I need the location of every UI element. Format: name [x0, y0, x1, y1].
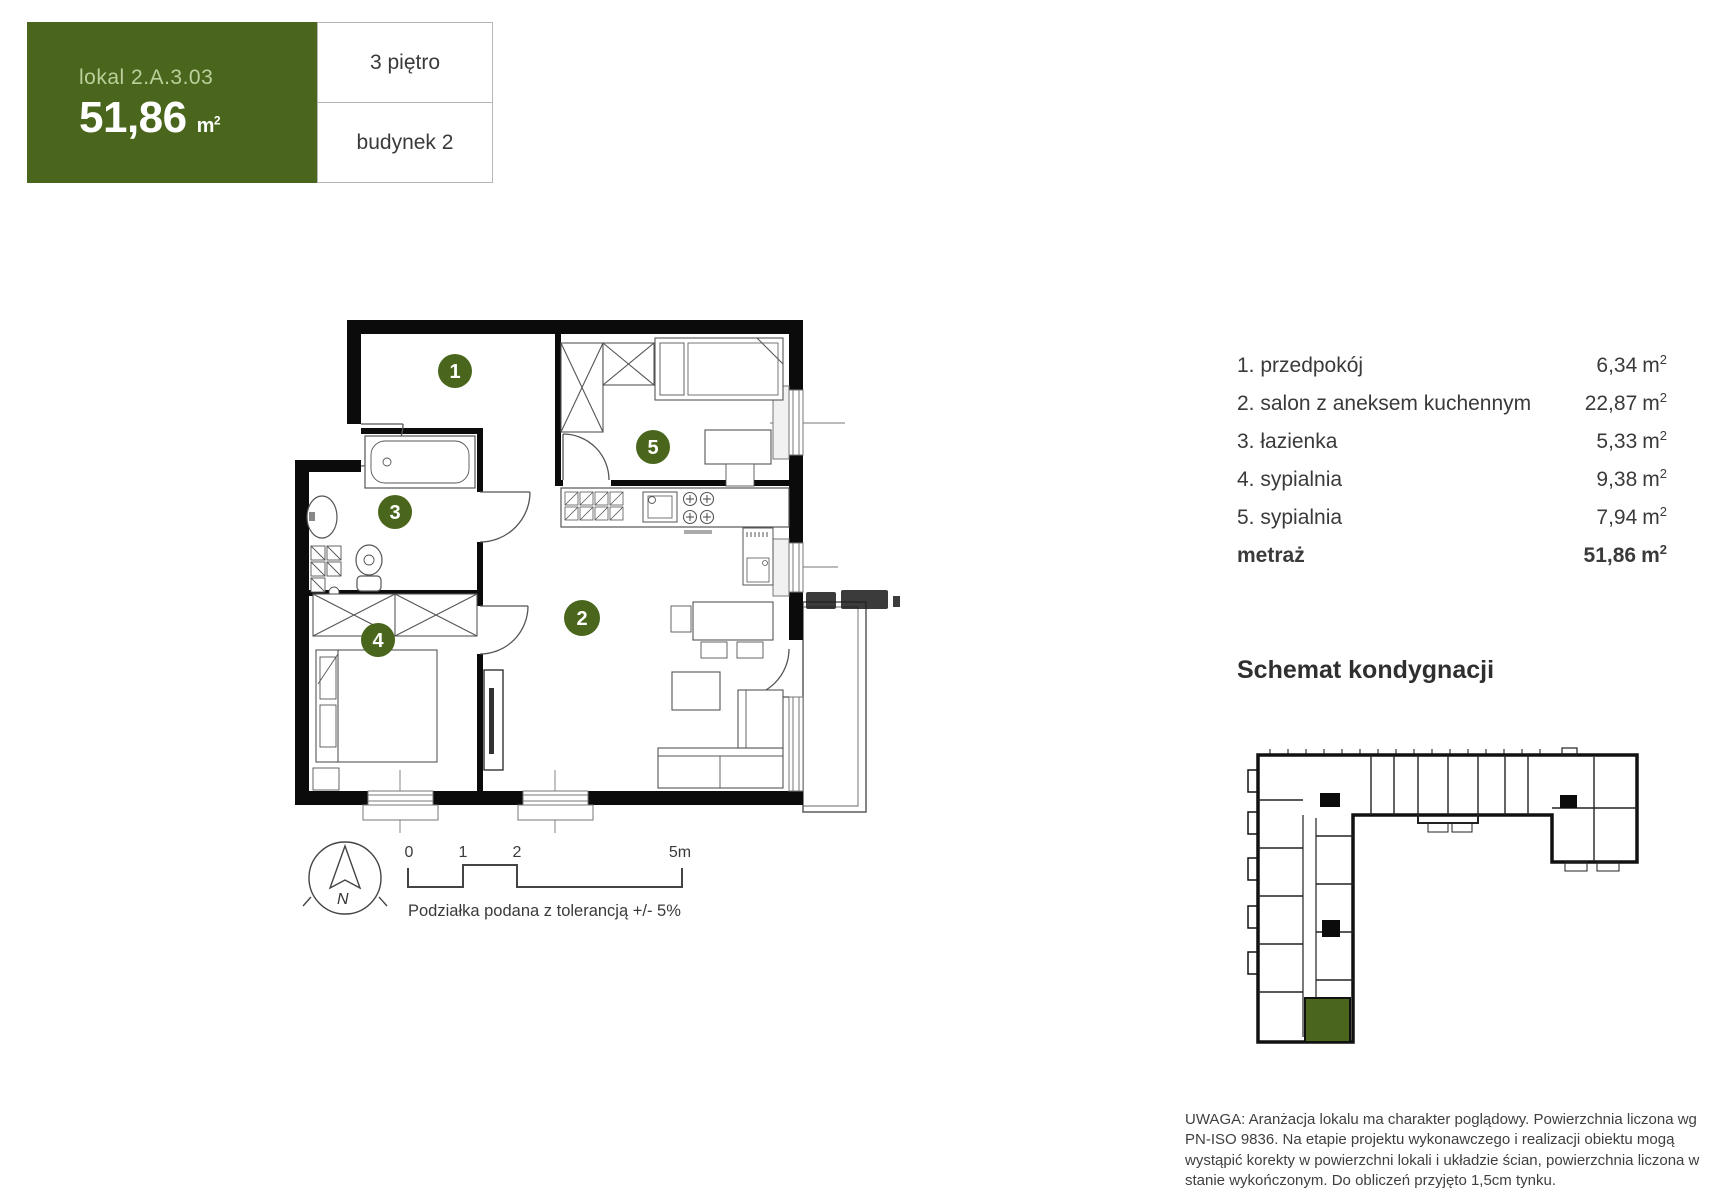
bedroom5-furniture: [561, 338, 783, 486]
fridge: [743, 528, 773, 585]
badge-4: 4: [372, 630, 384, 652]
wardrobe-room4: [313, 594, 477, 636]
unit-meta-table: 3 piętro budynek 2: [317, 22, 493, 183]
floor-cell: 3 piętro: [318, 23, 492, 103]
room-area: 7,94m2: [1596, 504, 1667, 530]
room-row: 3. łazienka 5,33m2: [1237, 428, 1667, 466]
unit-header-card: lokal 2.A.3.03 51,86m2: [27, 22, 317, 183]
scale-tick-1: 1: [459, 844, 468, 861]
apartment-floor-plan: 1 2 3 4 5 0 1 2 5m Podziałka podana z to…: [260, 300, 900, 980]
kitchen: [561, 488, 789, 585]
scale-tick-2: 2: [513, 844, 522, 861]
scale-tick-5m: 5m: [669, 844, 691, 861]
highlighted-unit: [1305, 998, 1350, 1042]
unit-id-line: lokal 2.A.3.03: [79, 66, 317, 90]
bedroom4-furniture: [313, 650, 437, 790]
scale-bar: 0 1 2 5m Podziałka podana z tolerancją +…: [405, 844, 692, 920]
scale-tick-0: 0: [405, 844, 414, 861]
washer-dryer: [311, 546, 341, 597]
room-label: 3. łazienka: [1237, 430, 1337, 454]
unit-area: 51,86m2: [79, 96, 317, 140]
room-area: 9,38m2: [1596, 466, 1667, 492]
total-label: metraż: [1237, 544, 1305, 568]
room-label: 2. salon z aneksem kuchennym: [1237, 392, 1531, 416]
disclaimer-note: UWAGA: Aranżacja lokalu ma charakter pog…: [1185, 1110, 1707, 1192]
room-label: 4. sypialnia: [1237, 468, 1342, 492]
room-list: 1. przedpokój 6,34m2 2. salon z aneksem …: [1237, 352, 1667, 580]
tv-unit: [484, 670, 503, 770]
unit-area-value: 51,86: [79, 93, 187, 142]
watermark-artifact: [806, 590, 900, 609]
room-row: 1. przedpokój 6,34m2: [1237, 352, 1667, 390]
north-arrow-icon: N: [303, 842, 387, 914]
room-row: 4. sypialnia 9,38m2: [1237, 466, 1667, 504]
room-area: 6,34m2: [1596, 352, 1667, 378]
building-cell: budynek 2: [318, 103, 492, 182]
scale-tolerance-note: Podziałka podana z tolerancją +/- 5%: [408, 902, 681, 920]
compass-n-label: N: [337, 891, 349, 908]
badge-2: 2: [576, 608, 587, 630]
badge-5: 5: [647, 437, 658, 459]
room-area: 22,87m2: [1585, 390, 1667, 416]
room-row: 2. salon z aneksem kuchennym 22,87m2: [1237, 390, 1667, 428]
unit-id: 2.A.3.03: [131, 66, 213, 89]
total-area-row: metraż 51,86m2: [1237, 542, 1667, 580]
badge-1: 1: [449, 361, 460, 383]
unit-prefix: lokal: [79, 66, 125, 89]
total-area: 51,86m2: [1584, 542, 1667, 568]
schematic-heading: Schemat kondygnacji: [1237, 656, 1494, 685]
wardrobes-room5: [561, 343, 654, 432]
room-label: 5. sypialnia: [1237, 506, 1342, 530]
room-row: 5. sypialnia 7,94m2: [1237, 504, 1667, 542]
floor-schematic: [1240, 740, 1650, 1050]
living-furniture: [658, 602, 783, 788]
floor-plan-sheet: lokal 2.A.3.03 51,86m2 3 piętro budynek …: [0, 0, 1725, 1200]
badge-3: 3: [389, 502, 400, 524]
balcony: [803, 602, 866, 812]
room-label: 1. przedpokój: [1237, 354, 1363, 378]
room-area: 5,33m2: [1596, 428, 1667, 454]
